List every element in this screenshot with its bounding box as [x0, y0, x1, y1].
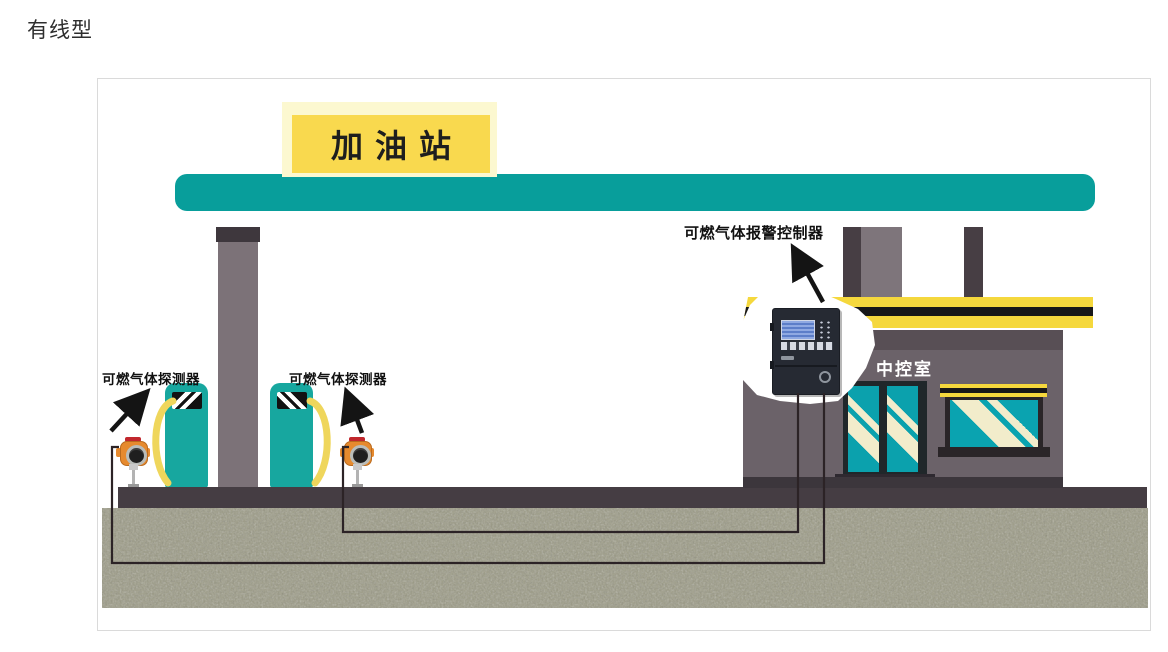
- gas-station-wiring-diagram: 有线型 加油站 中控室: [0, 0, 1168, 652]
- control-room-label: 中控室: [876, 355, 933, 380]
- detector-label-right: 可燃气体探测器: [289, 368, 387, 388]
- controller-logo: [781, 356, 794, 360]
- detector-sensor-ring: [126, 445, 147, 466]
- gas-detector-right: [340, 436, 374, 488]
- pump-display-right: [277, 392, 307, 409]
- controller-hinge-top: [770, 323, 774, 331]
- detector-sensor-ring: [350, 445, 371, 466]
- station-sign: 加油站: [292, 115, 490, 173]
- platform: [118, 487, 1147, 508]
- detector-foot: [128, 484, 139, 487]
- controller-button-row: [781, 342, 833, 350]
- control-room-window: [945, 397, 1043, 450]
- alarm-controller: [772, 308, 840, 395]
- controller-label: 可燃气体报警控制器: [684, 222, 824, 243]
- fuel-pump-left: [165, 383, 208, 488]
- detector-label-left: 可燃气体探测器: [102, 368, 200, 388]
- gas-detector-left: [116, 436, 150, 488]
- chimney-large-dark: [843, 227, 861, 298]
- chimney-large-light: [861, 227, 902, 298]
- canopy-column-cap: [216, 227, 260, 242]
- awning-black-stripe: [940, 388, 1047, 393]
- control-room-roof-shadow: [845, 330, 1063, 350]
- station-sign-text: 加油站: [331, 121, 463, 167]
- door-panel-right: [887, 386, 918, 472]
- controller-keypad: [818, 320, 833, 339]
- detector-stand: [132, 470, 135, 484]
- entrance-door: [843, 381, 927, 477]
- page-title: 有线型: [27, 14, 93, 44]
- chimney-small: [964, 227, 983, 298]
- controller-door-seam: [775, 365, 837, 367]
- window-glass: [950, 400, 1038, 447]
- detector-foot: [352, 484, 363, 487]
- controller-lcd-screen: [781, 320, 815, 340]
- pump-display-left: [172, 392, 202, 409]
- detector-stand: [356, 470, 359, 484]
- fuel-pump-right: [270, 383, 313, 488]
- controller-hinge-bottom: [770, 361, 774, 369]
- controller-lock-icon: [819, 371, 831, 383]
- soil: [102, 508, 1148, 608]
- canopy-column: [218, 242, 258, 488]
- window-awning: [940, 384, 1047, 397]
- building-base: [743, 477, 1063, 488]
- window-sill: [938, 447, 1050, 457]
- canopy: [175, 174, 1095, 211]
- door-panel-left: [848, 386, 879, 472]
